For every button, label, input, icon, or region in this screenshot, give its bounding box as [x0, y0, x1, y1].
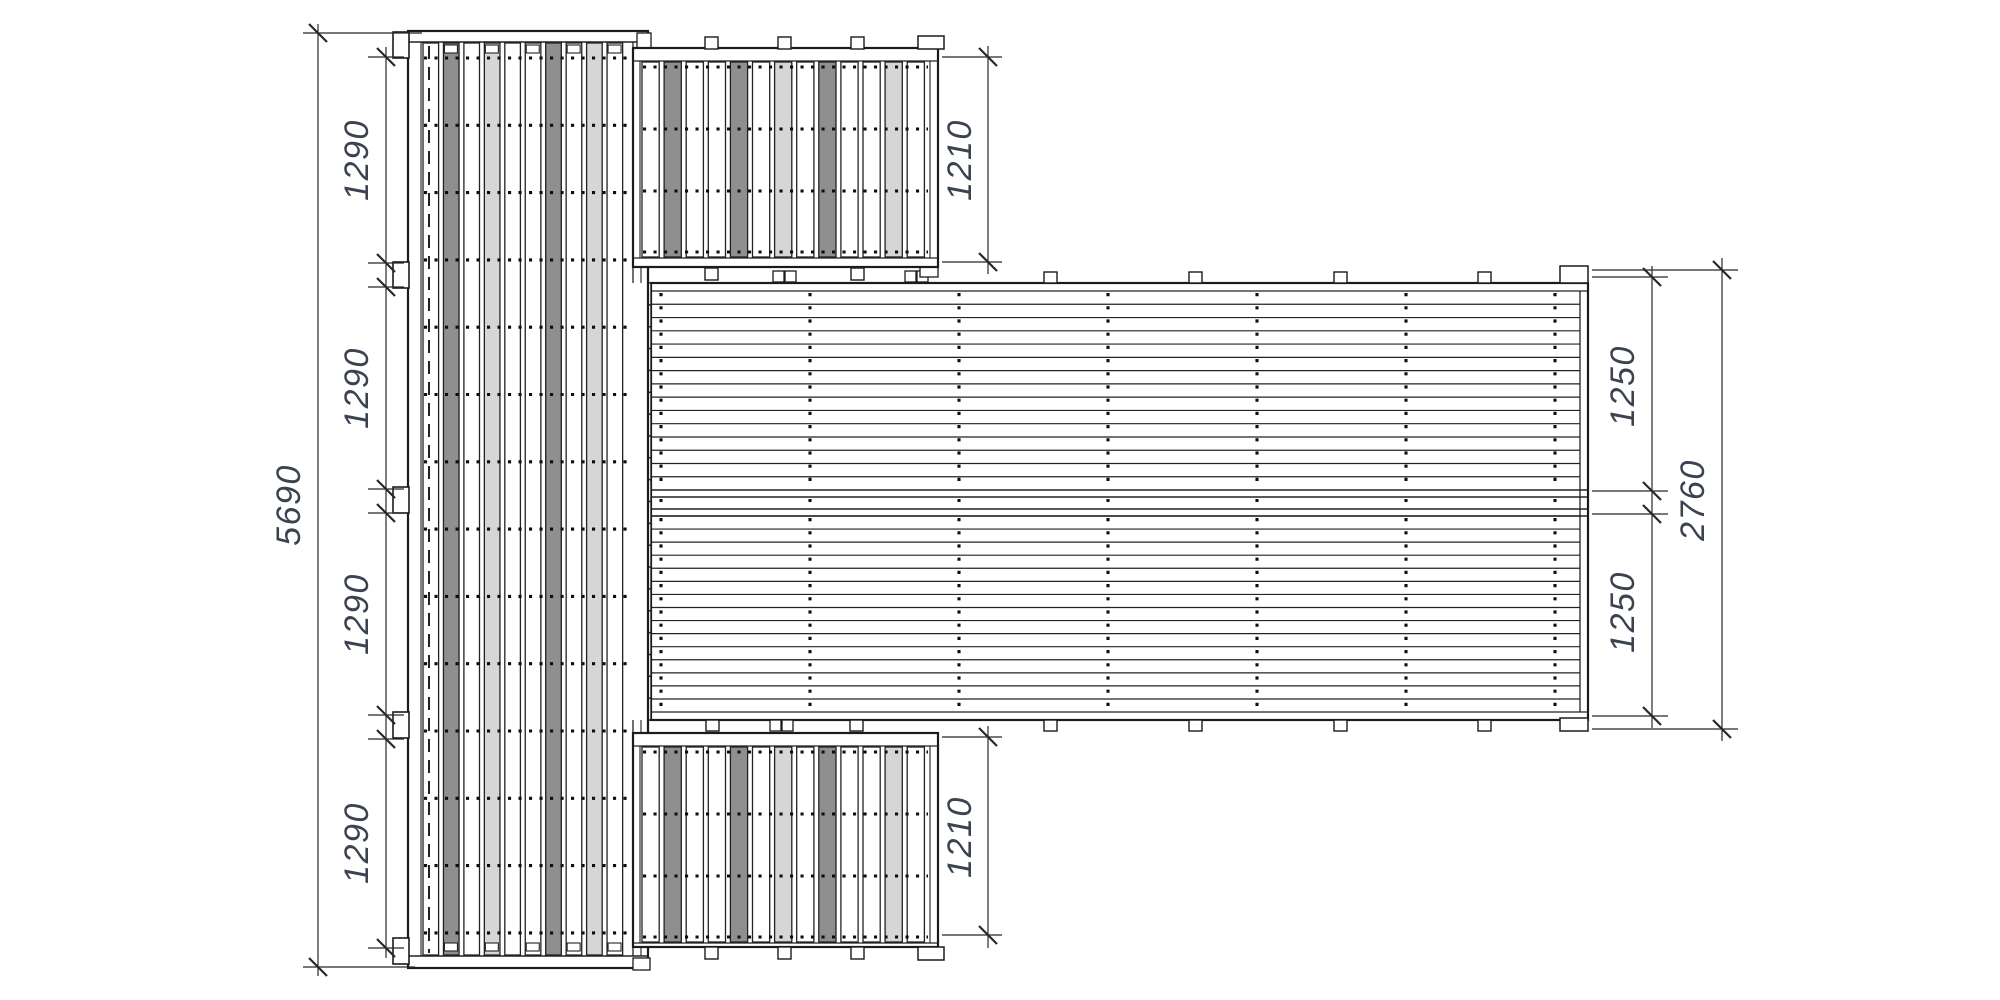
dim-label-left-segment-3: 1290: [338, 573, 376, 655]
deck-plan-drawing: 1290 1290 1290 1290 5690 1210 1210 1250 …: [0, 0, 2000, 1000]
dim-label-left-segment-4: 1290: [338, 802, 376, 884]
dim-label-right-segment-2: 1250: [1604, 571, 1642, 653]
bottom-wing-deck: [633, 733, 944, 960]
dim-label-left-total: 5690: [270, 464, 308, 546]
dim-label-top-wing: 1210: [941, 119, 979, 201]
main-deck: [630, 265, 1588, 731]
top-wing-deck: [633, 36, 944, 267]
dim-label-left-segment-1: 1290: [338, 119, 376, 201]
dim-label-left-segment-2: 1290: [338, 347, 376, 429]
dim-label-bottom-wing: 1210: [941, 796, 979, 878]
dim-label-right-segment-1: 1250: [1604, 345, 1642, 427]
dim-label-right-total: 2760: [1674, 459, 1712, 542]
left-deck: [393, 31, 651, 970]
